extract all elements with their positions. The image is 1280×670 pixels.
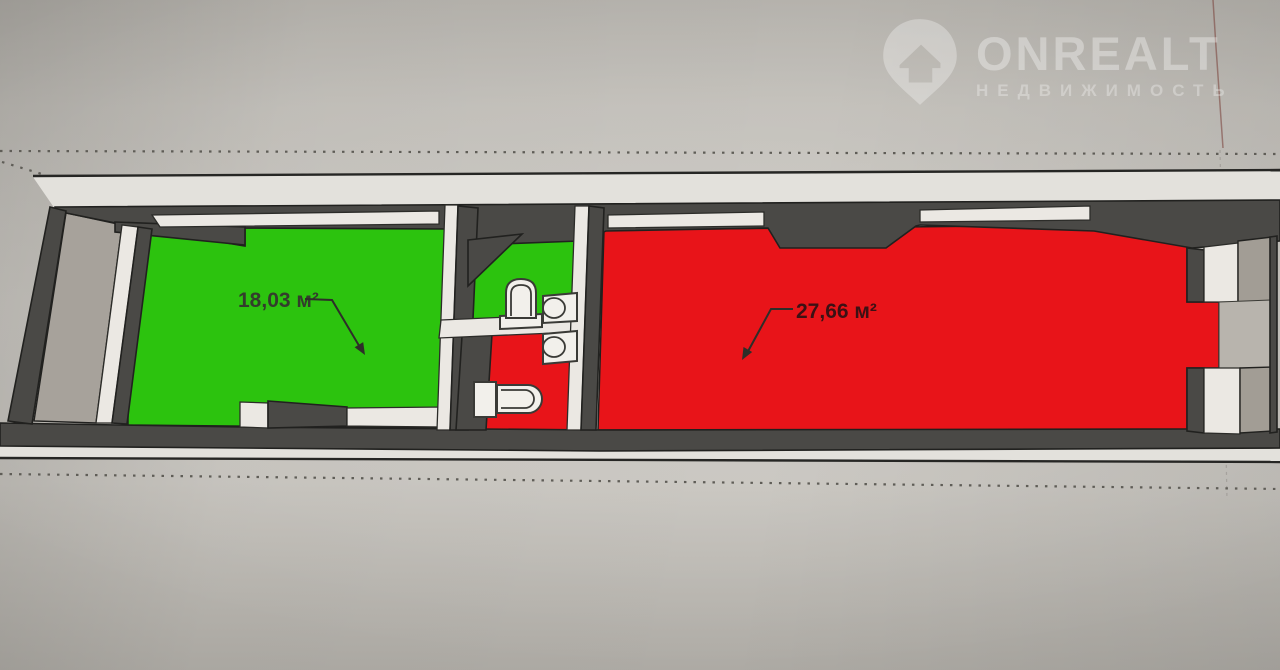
- sink-body: [543, 331, 577, 364]
- right-wall-dark-upper: [1187, 248, 1204, 302]
- right-wall-gray-block-lower: [1240, 367, 1272, 433]
- right-wall-white-block-upper: [1204, 243, 1238, 302]
- onrealt-watermark: ONREALT НЕДВИЖИМОСТЬ: [874, 16, 1234, 108]
- watermark-brand: ONREALT: [976, 30, 1234, 77]
- right-wall-gray-block-upper: [1238, 237, 1272, 302]
- sink-body: [543, 293, 577, 323]
- photo-of-floorplan: ONREALT НЕДВИЖИМОСТЬ: [0, 0, 1280, 670]
- dashed-line-top-left-diagonal: [2, 162, 42, 174]
- sink-upper-icon: [543, 293, 577, 323]
- sink-lower-icon: [543, 331, 577, 364]
- house-location-pin-icon: [883, 19, 957, 105]
- right-wall-white-block-lower: [1204, 368, 1240, 434]
- right-wall-dark-lower: [1187, 368, 1204, 433]
- area-label-green-room: 18,03 м²: [238, 289, 319, 312]
- toilet-tank: [474, 382, 496, 417]
- window-strip-red-room-left: [608, 212, 764, 228]
- green-room-floor: [128, 226, 445, 428]
- watermark-subtitle: НЕДВИЖИМОСТЬ: [976, 81, 1234, 101]
- area-label-red-room: 27,66 м²: [796, 300, 877, 323]
- right-doorway-opening: [1219, 300, 1272, 369]
- green-room-bottom-strip: [347, 407, 445, 427]
- dashed-line-bottom: [0, 474, 1280, 489]
- toilet-side-view-icon: [474, 382, 542, 417]
- red-room-floor: [598, 224, 1219, 430]
- watermark-text: ONREALT НЕДВИЖИМОСТЬ: [976, 16, 1234, 101]
- green-room-bottom-pillar: [240, 402, 268, 428]
- plan-right-edge: [1270, 236, 1277, 433]
- onrealt-logo-icon: [874, 16, 966, 108]
- toilet-top-view-icon: [500, 279, 542, 329]
- dashed-line-top: [0, 151, 1280, 154]
